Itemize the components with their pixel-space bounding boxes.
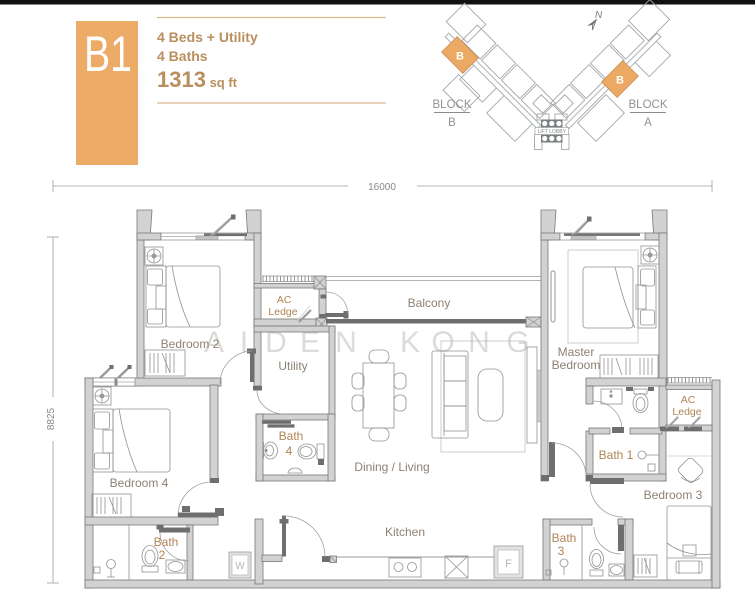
svg-text:B: B bbox=[456, 51, 464, 63]
svg-text:Master: Master bbox=[558, 345, 595, 359]
svg-text:2: 2 bbox=[159, 548, 166, 562]
svg-text:K: K bbox=[400, 326, 420, 359]
svg-text:Utility: Utility bbox=[278, 359, 307, 373]
svg-text:LIFT LOBBY: LIFT LOBBY bbox=[538, 129, 567, 135]
svg-text:Dining / Living: Dining / Living bbox=[354, 460, 429, 474]
svg-text:Bedroom 2: Bedroom 2 bbox=[161, 337, 220, 351]
svg-text:BLOCK: BLOCK bbox=[629, 99, 668, 111]
svg-text:Bedroom: Bedroom bbox=[552, 358, 601, 372]
svg-text:Bedroom 3: Bedroom 3 bbox=[644, 488, 703, 502]
svg-text:B: B bbox=[448, 117, 456, 129]
svg-text:8825: 8825 bbox=[46, 407, 57, 430]
svg-text:G: G bbox=[506, 326, 529, 359]
svg-text:Bedroom 4: Bedroom 4 bbox=[110, 476, 169, 490]
svg-text:B1: B1 bbox=[84, 26, 132, 82]
svg-text:4 Baths: 4 Baths bbox=[157, 48, 208, 64]
svg-text:Ledge: Ledge bbox=[672, 406, 701, 418]
svg-text:AC: AC bbox=[681, 394, 696, 406]
svg-text:F: F bbox=[505, 558, 512, 570]
svg-text:A: A bbox=[644, 117, 652, 129]
svg-text:Kitchen: Kitchen bbox=[385, 525, 425, 539]
svg-text:Bath: Bath bbox=[154, 535, 179, 549]
svg-text:W: W bbox=[235, 561, 245, 572]
svg-text:Bath: Bath bbox=[552, 531, 577, 545]
svg-text:4: 4 bbox=[286, 444, 293, 458]
svg-text:Bath: Bath bbox=[279, 429, 304, 443]
svg-text:B: B bbox=[616, 75, 624, 87]
svg-text:N: N bbox=[595, 10, 603, 21]
svg-text:3: 3 bbox=[558, 544, 565, 558]
svg-text:16000: 16000 bbox=[368, 182, 396, 193]
svg-text:Ledge: Ledge bbox=[268, 306, 297, 318]
svg-text:N: N bbox=[335, 326, 357, 359]
svg-text:AC: AC bbox=[277, 294, 292, 306]
svg-text:4 Beds + Utility: 4 Beds + Utility bbox=[157, 29, 258, 45]
svg-text:Bath 1: Bath 1 bbox=[599, 448, 634, 462]
svg-text:I: I bbox=[240, 326, 248, 359]
svg-text:N: N bbox=[468, 326, 490, 359]
svg-text:Balcony: Balcony bbox=[408, 296, 451, 310]
svg-text:O: O bbox=[431, 326, 454, 359]
svg-text:BLOCK: BLOCK bbox=[433, 99, 472, 111]
